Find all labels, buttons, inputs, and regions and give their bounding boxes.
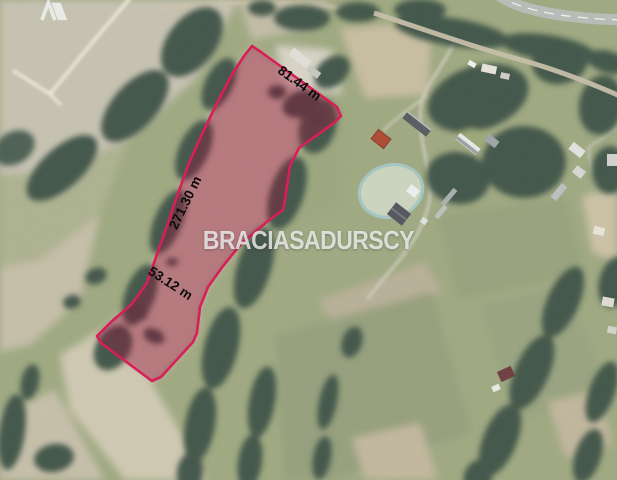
satellite-photo: 81.44 m 271.30 m 53.12 m BRACIA SADURSCY bbox=[0, 0, 617, 480]
photo-grain bbox=[0, 0, 617, 480]
map-canvas: 81.44 m 271.30 m 53.12 m bbox=[0, 0, 617, 480]
